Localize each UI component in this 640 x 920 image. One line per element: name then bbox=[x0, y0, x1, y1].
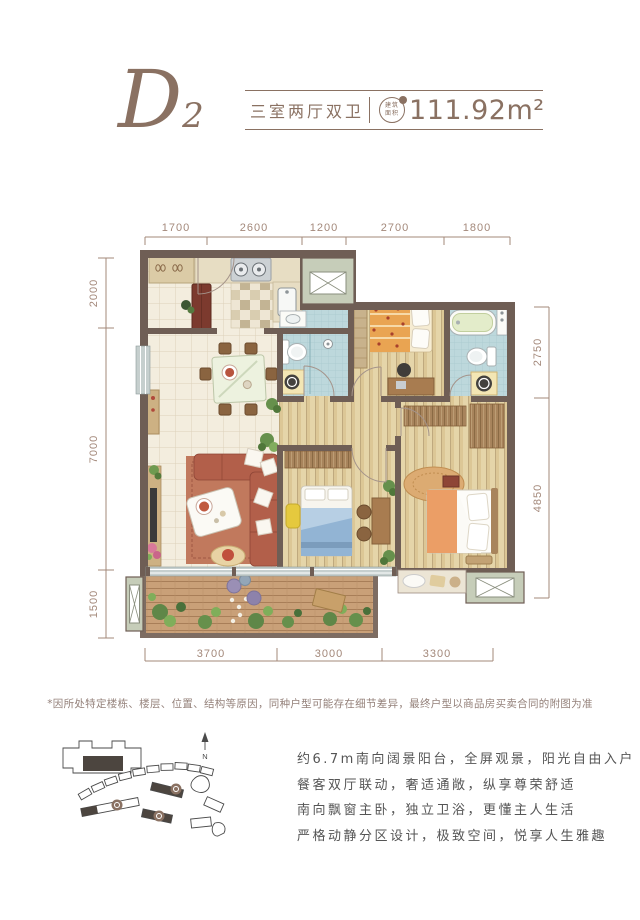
dim-label: 2000 bbox=[88, 279, 100, 307]
utility-platform-left bbox=[126, 577, 143, 631]
plan-title-box: 三室两厅双卫 建筑面积 111.92m² bbox=[245, 90, 543, 130]
dim-label: 2700 bbox=[381, 222, 409, 234]
dim-label: 1200 bbox=[310, 222, 338, 234]
dimensions-bottom: 3700 3000 3300 bbox=[145, 648, 493, 661]
badge-dot bbox=[399, 96, 407, 104]
description-line: 约6.7m南向阔景阳台，全屏观景，阳光自由入户 bbox=[297, 747, 635, 773]
dim-label: 3700 bbox=[197, 648, 225, 660]
utility-platform-top bbox=[302, 258, 354, 304]
building-outline bbox=[191, 776, 209, 793]
bay-window bbox=[398, 570, 466, 593]
dimensions-top: 1700 2600 1200 2700 1800 bbox=[145, 222, 510, 245]
dim-label: 4850 bbox=[532, 484, 544, 512]
dim-label: 3300 bbox=[423, 648, 451, 660]
dim-label: 1800 bbox=[463, 222, 491, 234]
dim-label: 7000 bbox=[88, 435, 100, 463]
description-line: 南向飘窗主卧，独立卫浴，更懂主人生活 bbox=[297, 798, 635, 824]
dim-label: 1500 bbox=[88, 590, 100, 618]
dim-label: 2750 bbox=[532, 338, 544, 366]
dimensions-left: 2000 7000 1500 bbox=[88, 258, 114, 638]
north-label: N bbox=[202, 752, 207, 761]
site-plan: N bbox=[63, 732, 225, 836]
description-block: 约6.7m南向阔景阳台，全屏观景，阳光自由入户 餐客双厅联动，奢适通敞，纵享尊荣… bbox=[297, 747, 635, 849]
plan-type: 三室两厅双卫 bbox=[250, 98, 364, 122]
disclaimer-text: *因所处特定楼栋、楼层、位置、结构等原因，同种户型可能存在细节差异，最终户型以商… bbox=[0, 696, 640, 711]
description-line: 严格动静分区设计，极致空间，悦享人生雅趣 bbox=[297, 824, 635, 850]
building-slab bbox=[81, 798, 139, 817]
north-arrow-icon: N bbox=[202, 732, 209, 761]
dining-window bbox=[136, 346, 150, 394]
title-divider bbox=[369, 97, 370, 123]
dim-label: 1700 bbox=[162, 222, 190, 234]
dim-label: 2600 bbox=[240, 222, 268, 234]
area-badge-label: 建筑面积 bbox=[385, 102, 400, 118]
plan-code: D2 bbox=[118, 60, 204, 140]
area-value: 111.92m² bbox=[409, 95, 545, 126]
dim-label: 3000 bbox=[315, 648, 343, 660]
utility-platform-right bbox=[466, 572, 524, 603]
description-line: 餐客双厅联动，奢适通敞，纵享尊荣舒适 bbox=[297, 773, 635, 799]
area-badge: 建筑面积 bbox=[379, 97, 405, 123]
building-highlight bbox=[83, 756, 123, 771]
dimensions-right: 2750 4850 bbox=[532, 307, 549, 598]
